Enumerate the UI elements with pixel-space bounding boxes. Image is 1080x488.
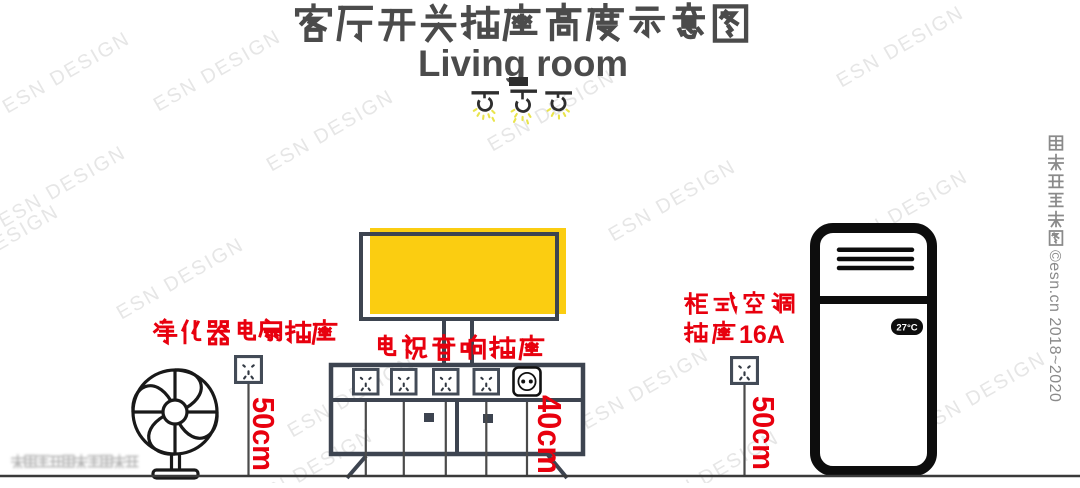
svg-text:50cm: 50cm: [246, 397, 281, 471]
svg-text:27°C: 27°C: [896, 323, 917, 334]
svg-text:ESN DESIGN: ESN DESIGN: [605, 155, 740, 246]
svg-text:50cm: 50cm: [746, 396, 781, 470]
svg-text:16A: 16A: [739, 321, 785, 349]
svg-text:ESN DESIGN: ESN DESIGN: [150, 25, 285, 116]
svg-text:ESN DESIGN: ESN DESIGN: [578, 343, 713, 434]
svg-text:©esn.cn 2018~2020: ©esn.cn 2018~2020: [1046, 250, 1063, 402]
svg-text:ESN DESIGN: ESN DESIGN: [833, 1, 968, 92]
svg-text:ESN DESIGN: ESN DESIGN: [263, 85, 398, 176]
svg-text:ESN DESIGN: ESN DESIGN: [113, 233, 248, 324]
svg-text:40cm: 40cm: [531, 395, 568, 474]
svg-text:ESN DESIGN: ESN DESIGN: [0, 27, 134, 118]
